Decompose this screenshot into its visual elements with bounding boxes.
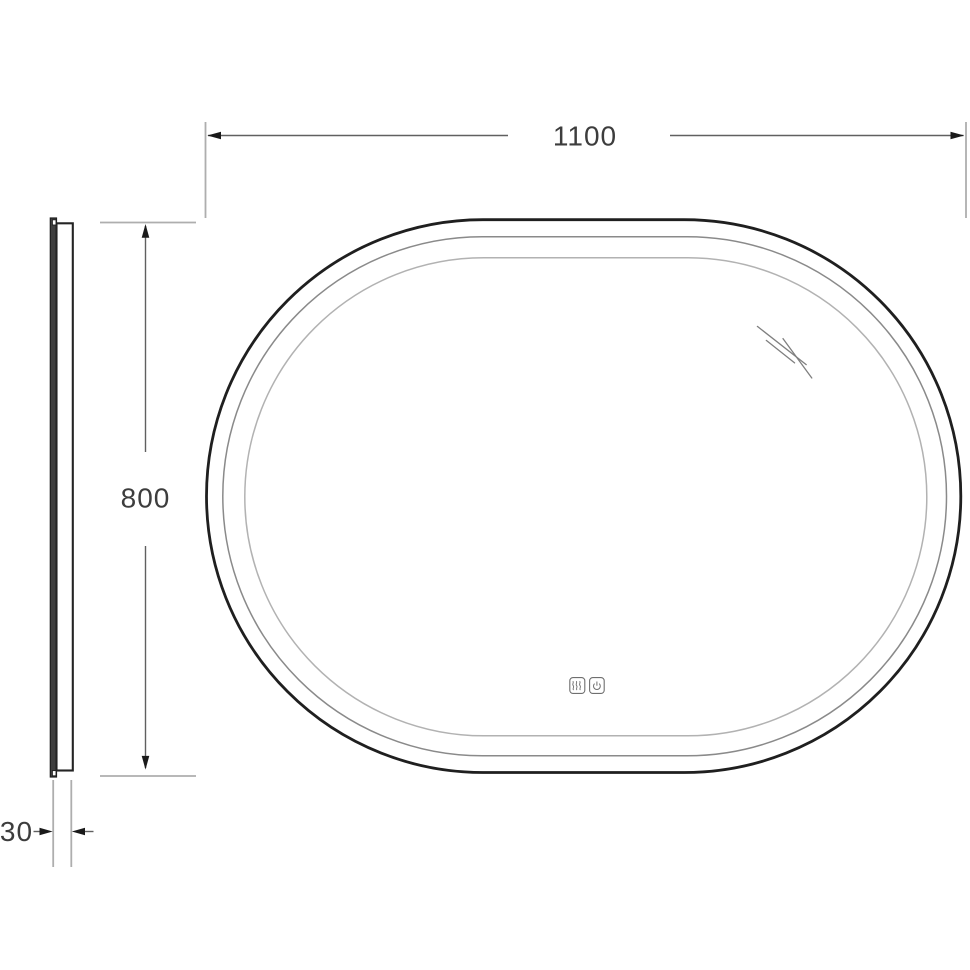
side-view-bottom-end-cap — [52, 771, 56, 776]
mirror-outer-edge — [207, 220, 961, 773]
mirror-technical-drawing: 1100 800 30 — [0, 0, 970, 970]
arrowhead-left — [207, 132, 221, 140]
side-view — [50, 218, 73, 777]
width-dimension-label: 1100 — [553, 121, 617, 152]
depth-dimension-label: 30 — [0, 816, 33, 847]
arrowhead-inward-right — [40, 828, 53, 835]
dimension-width: 1100 — [206, 121, 967, 219]
front-view — [207, 220, 961, 773]
height-dimension-label: 800 — [121, 483, 171, 514]
side-view-top-end-cap — [52, 220, 56, 225]
dimension-depth: 30 — [0, 780, 94, 867]
arrowhead-right — [951, 132, 965, 140]
technical-drawing-canvas: 1100 800 30 — [0, 0, 970, 970]
dimension-height: 800 — [100, 223, 196, 777]
arrowhead-top — [142, 224, 150, 238]
arrowhead-inward-left — [72, 828, 85, 835]
arrowhead-bottom — [142, 756, 150, 770]
side-view-body — [57, 223, 73, 770]
